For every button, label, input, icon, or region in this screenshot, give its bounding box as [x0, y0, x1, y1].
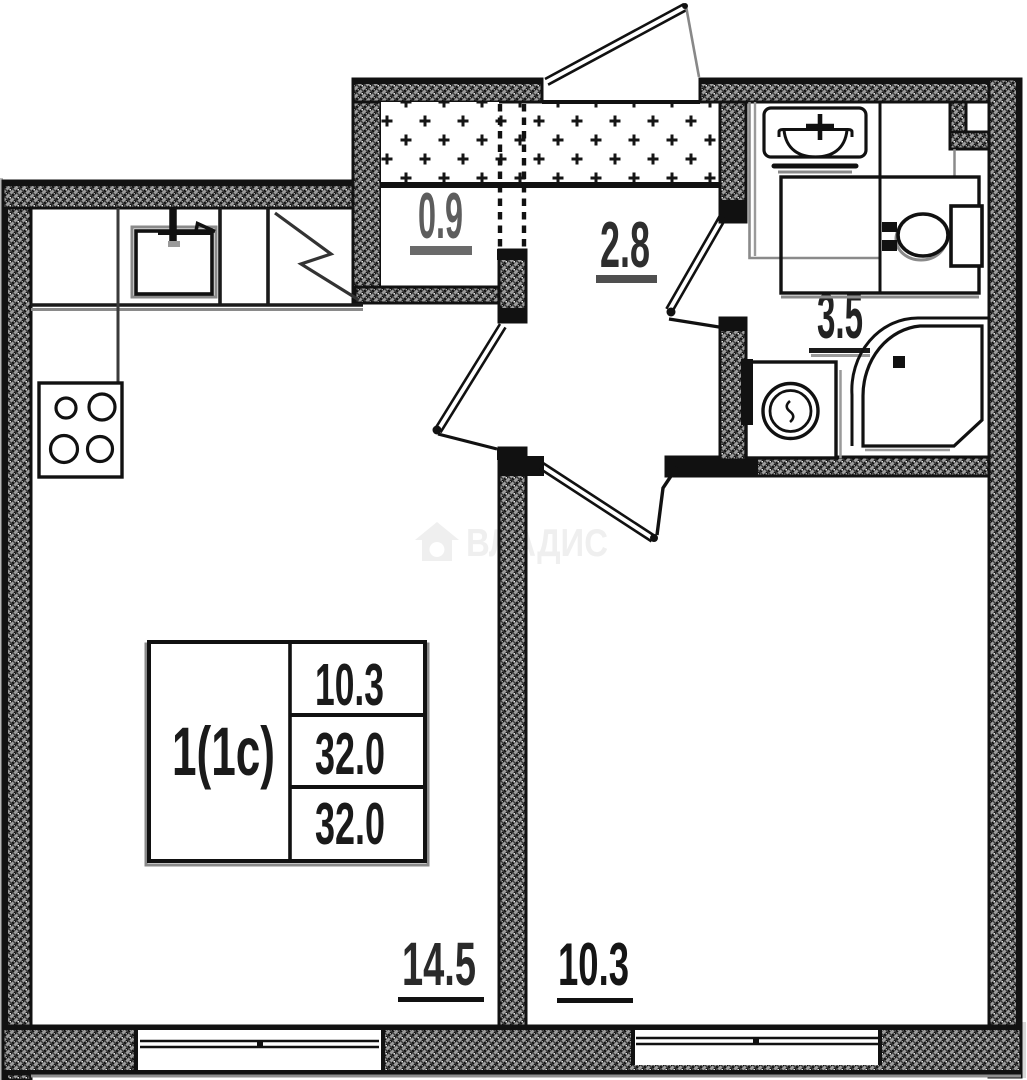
svg-text:32.0: 32.0 — [315, 721, 385, 787]
svg-text:3.5: 3.5 — [817, 280, 863, 352]
svg-text:0.9: 0.9 — [418, 179, 463, 252]
svg-text:2.8: 2.8 — [600, 208, 650, 281]
svg-text:10.3: 10.3 — [558, 931, 629, 998]
svg-text:14.5: 14.5 — [402, 930, 476, 998]
svg-text:32.0: 32.0 — [315, 791, 385, 857]
svg-text:10.3: 10.3 — [315, 652, 384, 718]
svg-text:ВЛАДИС: ВЛАДИС — [466, 522, 608, 565]
svg-text:1(1с): 1(1с) — [172, 713, 275, 790]
